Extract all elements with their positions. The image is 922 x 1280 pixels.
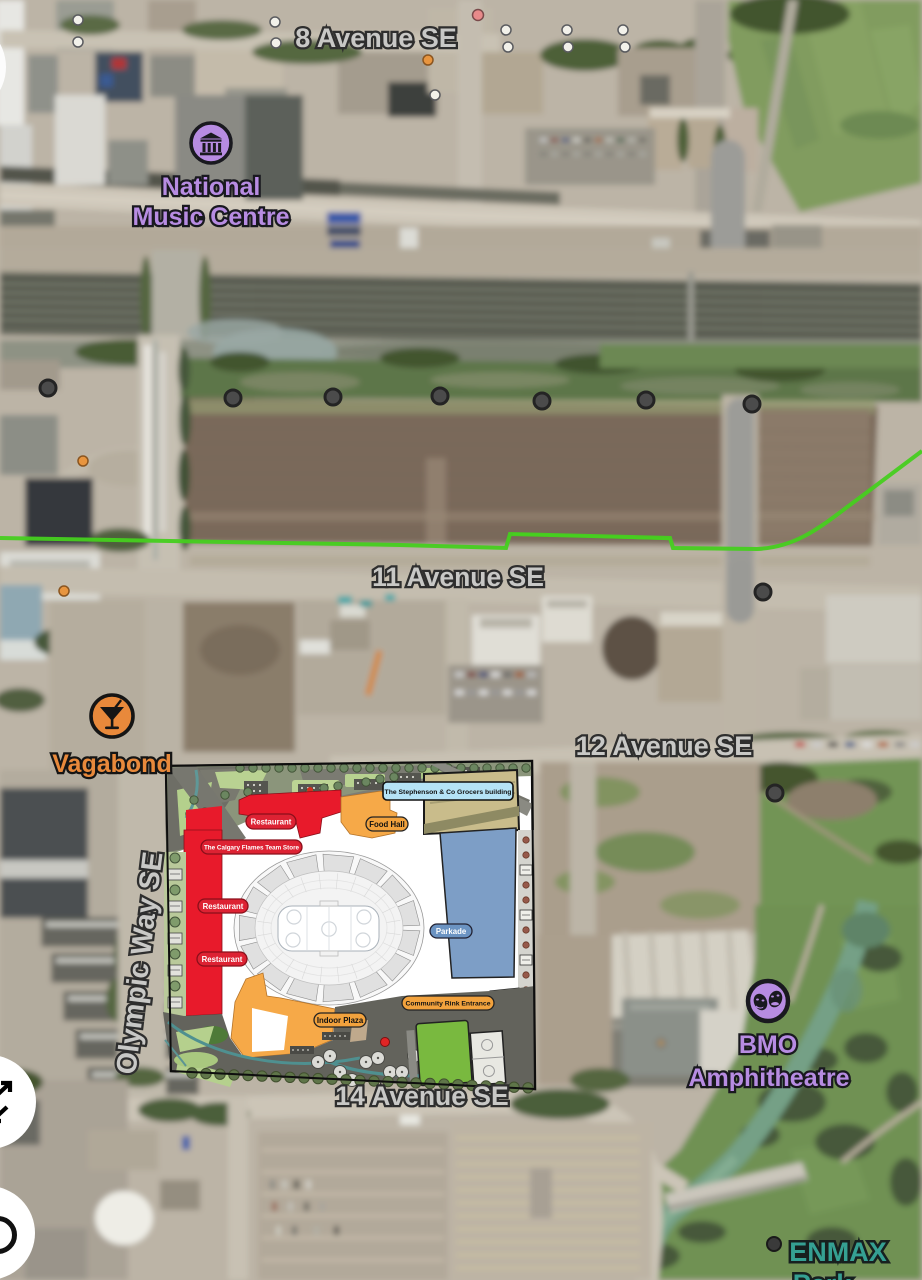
svg-text:Indoor Plaza: Indoor Plaza [317, 1016, 364, 1025]
svg-text:8 Avenue SE: 8 Avenue SE [295, 23, 457, 53]
svg-text:ENMAX: ENMAX [789, 1237, 887, 1267]
svg-text:Parkade: Parkade [436, 927, 467, 936]
svg-text:12 Avenue SE: 12 Avenue SE [576, 731, 753, 761]
svg-text:11 Avenue SE: 11 Avenue SE [372, 562, 544, 592]
svg-text:BMO: BMO [739, 1031, 797, 1059]
svg-text:The Calgary Flames Team Store: The Calgary Flames Team Store [204, 844, 300, 851]
svg-text:Restaurant: Restaurant [203, 902, 244, 911]
svg-text:Park: Park [793, 1269, 853, 1280]
svg-text:Food Hall: Food Hall [369, 820, 405, 829]
svg-text:National: National [162, 173, 261, 201]
svg-text:Vagabond: Vagabond [52, 750, 171, 778]
svg-text:Restaurant: Restaurant [202, 955, 243, 964]
svg-text:Community Rink Entrance: Community Rink Entrance [406, 1000, 491, 1007]
svg-text:14 Avenue SE: 14 Avenue SE [335, 1081, 508, 1111]
svg-text:Restaurant: Restaurant [251, 817, 292, 826]
svg-text:The Stephenson & Co Grocers bu: The Stephenson & Co Grocers building [385, 789, 512, 796]
svg-text:Music Centre: Music Centre [133, 203, 290, 231]
svg-text:Amphitheatre: Amphitheatre [688, 1064, 849, 1092]
